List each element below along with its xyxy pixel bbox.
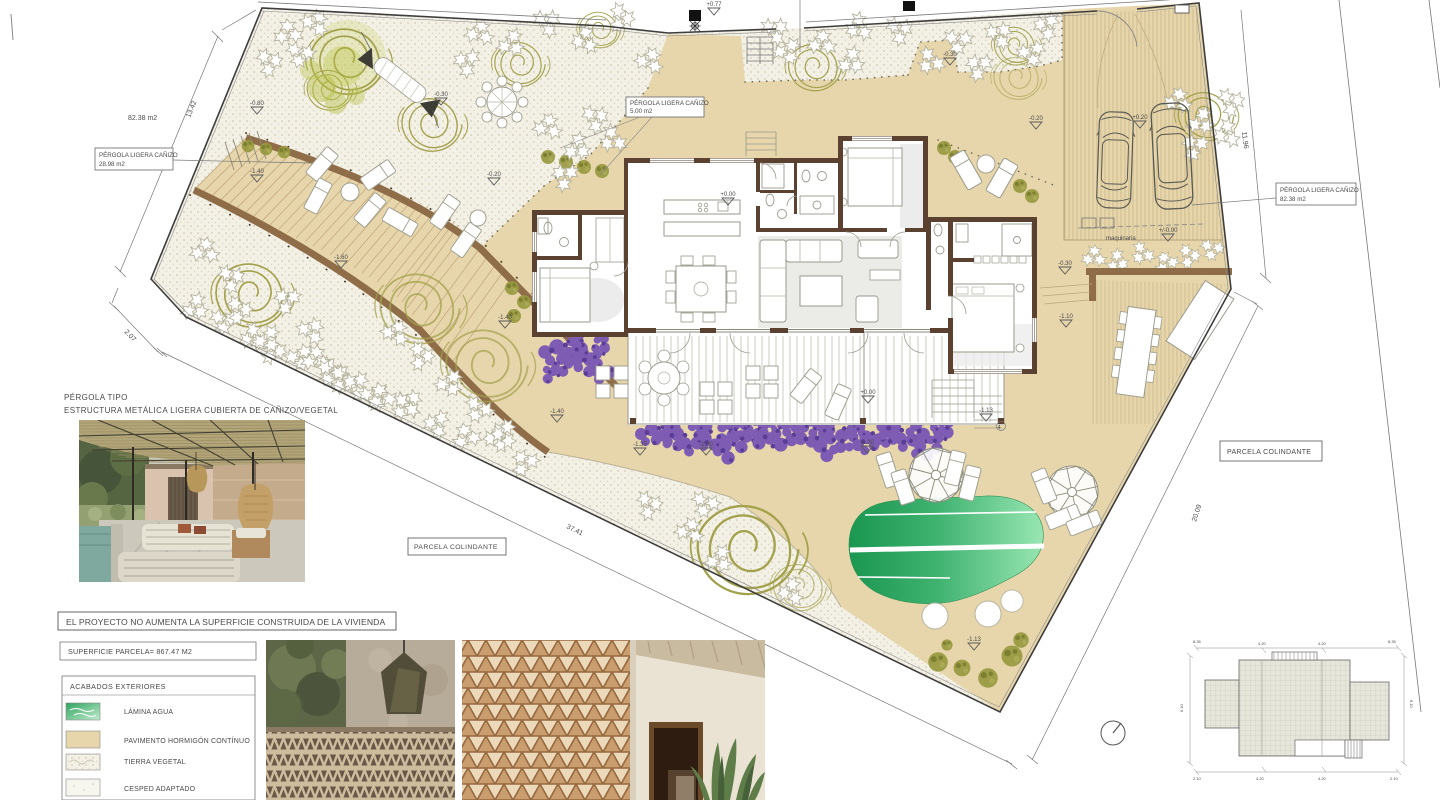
svg-text:ESTRUCTURA METÁLICA LIGERA CUB: ESTRUCTURA METÁLICA LIGERA CUBIERTA DE C…: [64, 406, 338, 415]
svg-text:-0.30: -0.30: [943, 52, 957, 58]
svg-text:+0.00: +0.00: [860, 390, 876, 396]
svg-text:-1.10: -1.10: [1059, 314, 1073, 320]
svg-text:PÉRGOLA TIPO: PÉRGOLA TIPO: [64, 393, 128, 402]
svg-text:-0.20: -0.20: [1029, 116, 1043, 122]
svg-text:4: 4: [997, 425, 1000, 431]
svg-text:-1.13: -1.13: [967, 637, 981, 643]
svg-text:+0.00: +0.00: [720, 192, 736, 198]
svg-text:6.10: 6.10: [1179, 703, 1184, 712]
svg-text:4.20: 4.20: [1258, 641, 1267, 646]
svg-text:+0.20: +0.20: [1132, 115, 1148, 121]
svg-text:TIERRA VEGETAL: TIERRA VEGETAL: [124, 759, 186, 766]
svg-text:-0.80: -0.80: [250, 101, 264, 107]
svg-text:PARCELA COLINDANTE: PARCELA COLINDANTE: [414, 544, 498, 551]
svg-text:2.10: 2.10: [1193, 776, 1202, 781]
svg-text:PÉRGOLA LIGERA CAÑIZO: PÉRGOLA LIGERA CAÑIZO: [99, 152, 178, 159]
svg-text:6.10: 6.10: [1409, 700, 1414, 709]
svg-text:2.10: 2.10: [1390, 776, 1399, 781]
svg-text:-0.30: -0.30: [434, 92, 448, 98]
svg-text:LÁMINA AGUA: LÁMINA AGUA: [124, 707, 173, 716]
svg-text:+/-0.00: +/-0.00: [1159, 228, 1179, 234]
svg-text:+0.77: +0.77: [706, 2, 722, 8]
svg-text:PARCELA COLINDANTE: PARCELA COLINDANTE: [1227, 449, 1311, 456]
svg-text:4.20: 4.20: [1318, 776, 1327, 781]
svg-text:8.35: 8.35: [1193, 639, 1202, 644]
svg-text:PÉRGOLA LIGERA CAÑIZO: PÉRGOLA LIGERA CAÑIZO: [1280, 187, 1359, 194]
svg-text:PÉRGOLA LIGERA CAÑIZO: PÉRGOLA LIGERA CAÑIZO: [630, 100, 709, 107]
svg-text:SUPERFICIE PARCELA= 867.47 M2: SUPERFICIE PARCELA= 867.47 M2: [68, 647, 192, 656]
svg-text:CESPED ADAPTADO: CESPED ADAPTADO: [124, 786, 196, 793]
svg-text:-1.13: -1.13: [979, 408, 993, 414]
svg-text:-1.30: -1.30: [699, 442, 713, 448]
svg-text:82.38 m2: 82.38 m2: [128, 115, 157, 122]
svg-text:-1.20: -1.20: [860, 440, 874, 446]
svg-text:82.38 m2: 82.38 m2: [1280, 196, 1306, 203]
svg-text:-0.30: -0.30: [1058, 261, 1072, 267]
svg-text:ACABADOS EXTERIORES: ACABADOS EXTERIORES: [70, 682, 166, 691]
svg-text:EL PROYECTO NO AUMENTA LA SUPE: EL PROYECTO NO AUMENTA LA SUPERFICIE CON…: [66, 617, 385, 627]
svg-text:-1.40: -1.40: [498, 315, 512, 321]
svg-text:-1.60: -1.60: [334, 255, 348, 261]
svg-text:maquinaria: maquinaria: [1106, 236, 1136, 242]
svg-text:-1.40: -1.40: [550, 409, 564, 415]
svg-text:-0.20: -0.20: [487, 172, 501, 178]
svg-text:4.20: 4.20: [1318, 641, 1327, 646]
svg-text:4.20: 4.20: [1256, 776, 1265, 781]
svg-text:8.35: 8.35: [1388, 639, 1397, 644]
svg-text:PAVIMENTO HORMIGÓN CONTÍNUO: PAVIMENTO HORMIGÓN CONTÍNUO: [124, 736, 250, 745]
svg-text:-1.35: -1.35: [633, 442, 647, 448]
svg-text:28.98 m2: 28.98 m2: [99, 161, 125, 168]
svg-text:-1.40: -1.40: [250, 169, 264, 175]
svg-text:5.00 m2: 5.00 m2: [630, 108, 653, 115]
